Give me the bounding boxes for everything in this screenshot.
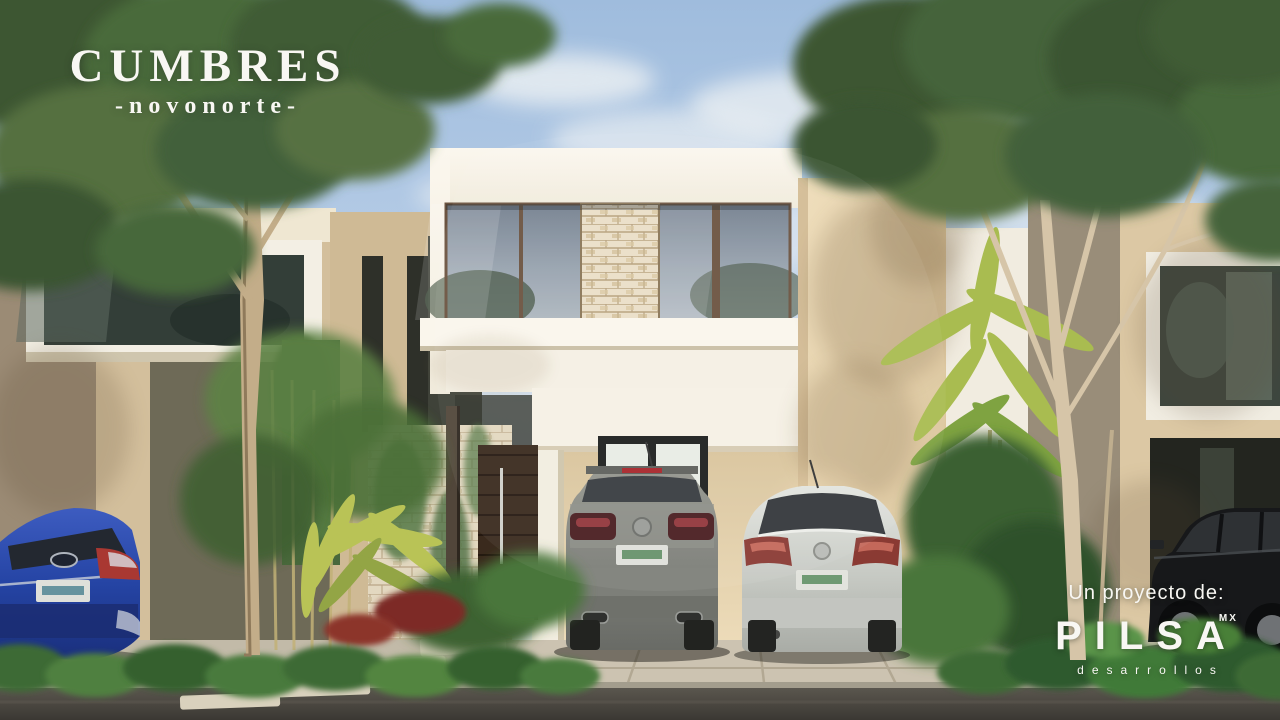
developer-prefix: Un proyecto de: xyxy=(1054,582,1239,605)
developer-region: MX xyxy=(1219,613,1238,624)
developer-logo: Un proyecto de: PILSAMX desarrollos xyxy=(1054,582,1239,677)
black-sedan-mirror xyxy=(1150,540,1164,549)
cumbres-logo: CUMBRES -novonorte- xyxy=(58,42,358,120)
developer-tagline: desarrollos xyxy=(1054,663,1247,677)
developer-name: PILSA xyxy=(1055,614,1238,658)
watermark xyxy=(434,134,945,591)
architectural-render: CUMBRES -novonorte- Un proyecto de: PILS… xyxy=(0,0,1280,720)
brand-subtitle: -novonorte- xyxy=(58,93,358,120)
brand-title: CUMBRES xyxy=(58,42,358,91)
kia-badge xyxy=(51,553,77,567)
